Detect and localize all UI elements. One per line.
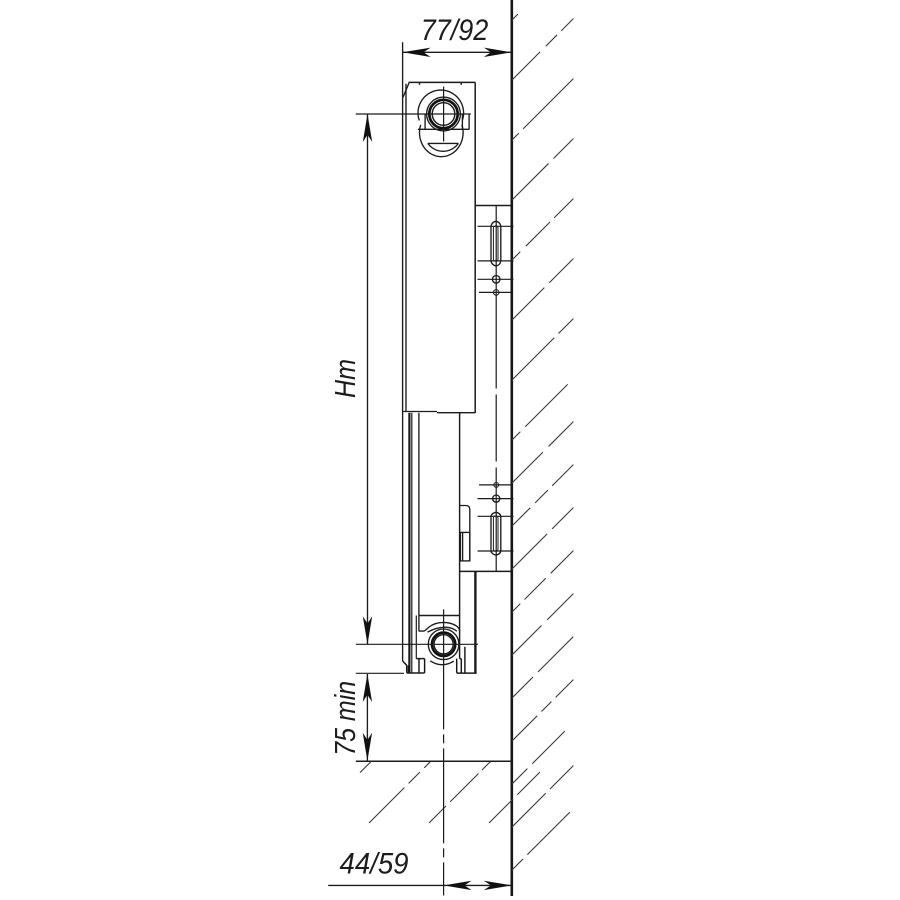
- svg-text:77/92: 77/92: [421, 14, 489, 47]
- svg-text:Hm: Hm: [330, 359, 362, 398]
- svg-text:75 min: 75 min: [330, 681, 362, 756]
- svg-text:44/59: 44/59: [340, 847, 409, 880]
